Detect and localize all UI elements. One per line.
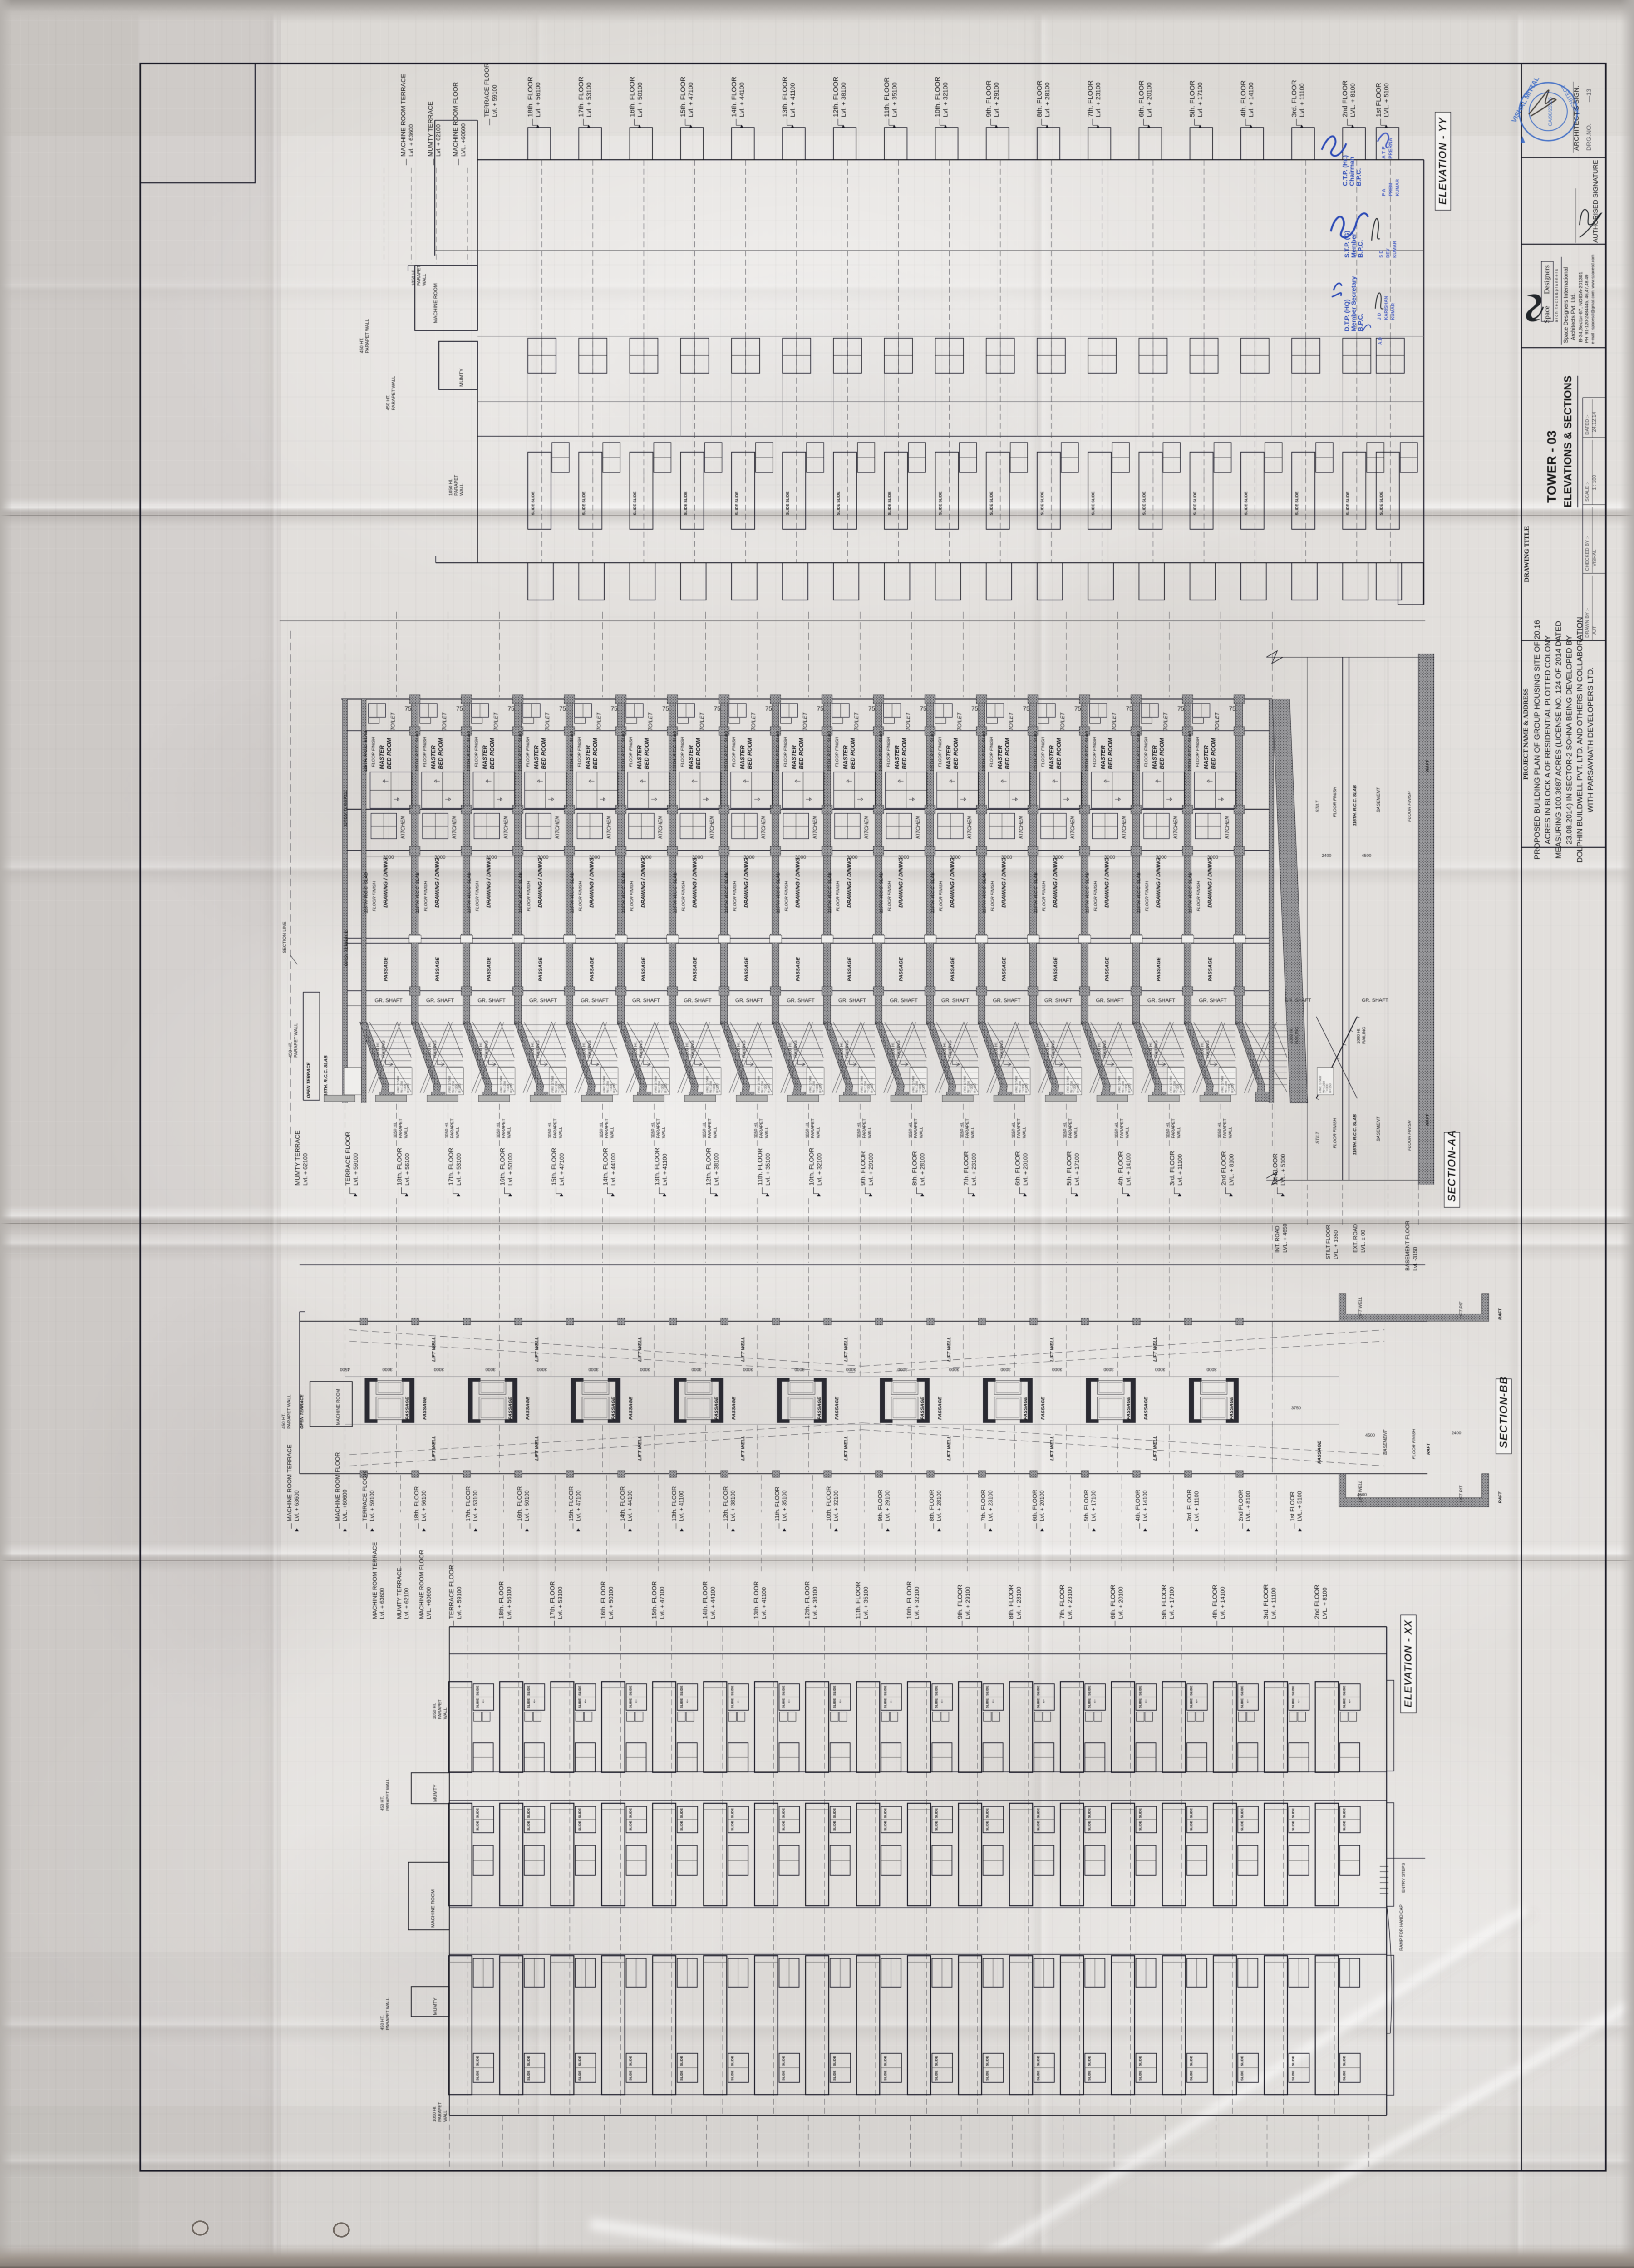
svg-text:1st FLOOR: 1st FLOOR [1289, 1491, 1296, 1521]
svg-text:6th. FLOOR: 6th. FLOOR [1031, 1490, 1038, 1521]
svg-text:Lvl. + 35100: Lvl. + 35100 [782, 1490, 788, 1521]
svg-text:LIFT WELL: LIFT WELL [843, 1436, 849, 1461]
svg-text:15th. FLOOR: 15th. FLOOR [679, 77, 687, 117]
svg-text:Lvl. + 29100: Lvl. + 29100 [885, 1490, 891, 1521]
svg-text:Lvl. + 17100: Lvl. + 17100 [1091, 1490, 1097, 1521]
svg-text:9th. FLOOR: 9th. FLOOR [877, 1490, 884, 1521]
svg-text:Lvl. -3150: Lvl. -3150 [1412, 1247, 1418, 1271]
svg-text:4500: 4500 [1365, 1433, 1375, 1438]
svg-text:3000: 3000 [433, 1367, 444, 1372]
svg-text:115TH. R.C.C. SLAB: 115TH. R.C.C. SLAB [1353, 785, 1358, 826]
svg-text:18th. FLOOR: 18th. FLOOR [527, 77, 534, 117]
svg-text:D.T.P. (HQ): D.T.P. (HQ) [1343, 299, 1350, 331]
svg-text:SLIDE SLIDE: SLIDE SLIDE [1379, 491, 1383, 515]
svg-text:S D: S D [1379, 250, 1384, 258]
svg-text:OPEN TERRACE: OPEN TERRACE [306, 1062, 311, 1098]
svg-text:12th. FLOOR: 12th. FLOOR [803, 1581, 811, 1619]
svg-text:Lvl. + 20100: Lvl. + 20100 [1117, 1587, 1124, 1619]
svg-text:24.12.14: 24.12.14 [1592, 412, 1597, 432]
svg-text:WALL: WALL [459, 483, 464, 496]
svg-text:Architects Pvt. Ltd.: Architects Pvt. Ltd. [1570, 293, 1576, 340]
svg-text:Lvl. + 44100: Lvl. + 44100 [738, 82, 745, 117]
svg-text:PASSAGE: PASSAGE [834, 1396, 840, 1420]
svg-text:MUMTY TERRACE: MUMTY TERRACE [396, 1568, 403, 1619]
svg-text:WALL: WALL [443, 2110, 448, 2122]
svg-text:1000 HI.: 1000 HI. [1289, 1028, 1294, 1044]
svg-text:4500: 4500 [1357, 1492, 1367, 1497]
svg-text:3000: 3000 [536, 1367, 547, 1372]
svg-text:DRAWN BY :-: DRAWN BY :- [1585, 608, 1590, 638]
svg-text:Lvl. + 62100: Lvl. + 62100 [302, 1153, 309, 1186]
svg-text:23.08.2014) IN SECTOR-2 SOHNA: 23.08.2014) IN SECTOR-2 SOHNA BEING DEVE… [1565, 635, 1574, 845]
svg-text:Lvl. + 50100: Lvl. + 50100 [507, 1153, 514, 1186]
svg-text:5th. FLOOR: 5th. FLOOR [1065, 1151, 1073, 1186]
svg-text:LIFT WELL: LIFT WELL [431, 1436, 437, 1461]
svg-text:3000: 3000 [1206, 1367, 1217, 1372]
svg-text:450 HT.: 450 HT. [281, 1413, 286, 1429]
svg-text:3000: 3000 [588, 1367, 599, 1372]
svg-text:Lvl. + 41100: Lvl. + 41100 [679, 1491, 685, 1521]
svg-text:RAFT: RAFT [1426, 1442, 1431, 1455]
svg-text:18th. FLOOR: 18th. FLOOR [396, 1148, 403, 1186]
svg-text:KUMAR: KUMAR [1393, 241, 1398, 258]
svg-text:3000: 3000 [1103, 1367, 1114, 1372]
svg-text:SECTION-BB: SECTION-BB [1498, 1376, 1510, 1448]
svg-text:LIFT WELL: LIFT WELL [1049, 1337, 1055, 1362]
svg-text:7th. FLOOR: 7th. FLOOR [962, 1151, 970, 1186]
svg-text:Lvl. + 56100: Lvl. + 56100 [421, 1490, 427, 1521]
svg-text:LVL. + 4650: LVL. + 4650 [1282, 1224, 1288, 1253]
svg-text:PASSAGE: PASSAGE [817, 1396, 822, 1420]
svg-text:LIFT WELL: LIFT WELL [1049, 1436, 1055, 1461]
svg-text:9th. FLOOR: 9th. FLOOR [985, 80, 993, 117]
svg-text:B-34,Sector-67, NOIDA-201301: B-34,Sector-67, NOIDA-201301 [1578, 272, 1584, 342]
svg-text:18th. FLOOR: 18th. FLOOR [413, 1486, 420, 1521]
svg-text:FIRE STAIR: FIRE STAIR [1319, 1076, 1322, 1093]
svg-text:11th. FLOOR: 11th. FLOOR [756, 1148, 763, 1186]
svg-text:RAFT: RAFT [1498, 1491, 1503, 1503]
svg-text:Space: Space [1543, 306, 1551, 323]
svg-text:3rd. FLOOR: 3rd. FLOOR [1168, 1151, 1176, 1186]
svg-text:3000: 3000 [897, 1367, 908, 1372]
svg-text:Lvl. + 38100: Lvl. + 38100 [840, 82, 847, 117]
svg-text:J D: J D [1377, 313, 1382, 320]
svg-text:RAFT: RAFT [1425, 1113, 1430, 1126]
svg-text:VISHAL: VISHAL [1592, 549, 1597, 566]
svg-text:LIFT WELL: LIFT WELL [740, 1337, 746, 1362]
svg-text:FLOOR FINISH: FLOOR FINISH [1333, 1118, 1338, 1148]
svg-text:SLIDE SLIDE: SLIDE SLIDE [1294, 491, 1299, 515]
svg-text:Lvl. + 23100: Lvl. + 23100 [1066, 1587, 1073, 1619]
svg-text:13th. FLOOR: 13th. FLOOR [753, 1581, 760, 1619]
svg-text:SLIDE SLIDE: SLIDE SLIDE [1345, 491, 1350, 515]
svg-text:LIFT WELL: LIFT WELL [637, 1436, 643, 1461]
svg-text:2400: 2400 [1452, 1431, 1461, 1436]
svg-text:Lvl. + 28100: Lvl. + 28100 [1015, 1587, 1022, 1619]
svg-text:PASSAGE: PASSAGE [731, 1396, 737, 1420]
svg-text:Lvl. + 14100: Lvl. + 14100 [1142, 1490, 1148, 1521]
svg-text:WALL: WALL [443, 1707, 448, 1719]
svg-text:8th. FLOOR: 8th. FLOOR [911, 1151, 918, 1186]
svg-text:15th. FLOOR: 15th. FLOOR [650, 1581, 658, 1619]
svg-text:8th. FLOOR: 8th. FLOOR [1036, 80, 1043, 117]
svg-text:10th. FLOOR: 10th. FLOOR [808, 1148, 815, 1186]
svg-text:PARAPET: PARAPET [417, 265, 422, 286]
svg-text:SLIDE SLIDE: SLIDE SLIDE [989, 491, 994, 515]
svg-text:B.P.C.: B.P.C. [1355, 168, 1362, 186]
svg-text:RAFT: RAFT [1425, 759, 1430, 772]
svg-text:6th. FLOOR: 6th. FLOOR [1137, 80, 1145, 117]
svg-text:PARAPET: PARAPET [438, 2102, 443, 2122]
svg-text:EXT. ROAD: EXT. ROAD [1352, 1224, 1358, 1253]
svg-text:3000: 3000 [846, 1367, 856, 1372]
svg-text:14th. FLOOR: 14th. FLOOR [619, 1486, 626, 1521]
svg-text:PASSAGE: PASSAGE [422, 1396, 428, 1420]
svg-text:Lvl. + 59100: Lvl. + 59100 [491, 85, 498, 117]
svg-text:ARCHITECT'S SIGN.: ARCHITECT'S SIGN. [1573, 85, 1580, 151]
svg-text:MUMTY: MUMTY [433, 1998, 438, 2016]
svg-text:PASSAGE: PASSAGE [1126, 1396, 1132, 1420]
svg-text:LIFT PIT: LIFT PIT [1459, 1301, 1464, 1318]
svg-text:LIFT WELL: LIFT WELL [534, 1436, 540, 1461]
svg-text:ENTRY STEPS: ENTRY STEPS [1401, 1863, 1406, 1893]
svg-text:3000: 3000 [794, 1367, 805, 1372]
svg-text:7th. FLOOR: 7th. FLOOR [1087, 80, 1094, 117]
svg-text:TOWER - 03: TOWER - 03 [1545, 430, 1559, 503]
svg-text:12th. FLOOR: 12th. FLOOR [705, 1148, 712, 1186]
svg-text:3000: 3000 [640, 1367, 650, 1372]
svg-text:Lvl. + 29100: Lvl. + 29100 [867, 1153, 874, 1186]
svg-text:SECTION-AA: SECTION-AA [1446, 1130, 1458, 1202]
svg-text:3000: 3000 [743, 1367, 753, 1372]
svg-text:Lvl. + 38100: Lvl. + 38100 [713, 1153, 720, 1186]
svg-text:STILT: STILT [1315, 800, 1320, 812]
svg-text:4th. FLOOR: 4th. FLOOR [1117, 1151, 1124, 1186]
svg-text:LVL. ± 00: LVL. ± 00 [1360, 1230, 1366, 1253]
svg-text:4th. FLOOR: 4th. FLOOR [1134, 1490, 1141, 1521]
svg-text:Lvl. + 53100: Lvl. + 53100 [455, 1153, 462, 1186]
svg-text:5th. FLOOR: 5th. FLOOR [1083, 1490, 1090, 1521]
svg-text:3750: 3750 [1291, 1406, 1301, 1411]
svg-text:DATED :-: DATED :- [1585, 414, 1590, 435]
svg-text:Lvl. + 41100: Lvl. + 41100 [789, 83, 796, 117]
svg-text:9th. FLOOR: 9th. FLOOR [956, 1585, 964, 1619]
svg-text:8th. FLOOR: 8th. FLOOR [928, 1490, 935, 1521]
svg-text:LIFT WELL: LIFT WELL [1358, 1297, 1363, 1318]
svg-text:Lvl. + 56100: Lvl. + 56100 [506, 1587, 512, 1619]
svg-text:R=150: R=150 [1329, 1083, 1332, 1093]
svg-text:1050 HI.: 1050 HI. [432, 1703, 437, 1719]
svg-text:FLOOR FINISH: FLOOR FINISH [1333, 787, 1338, 817]
svg-text:Lvl. + 11100: Lvl. + 11100 [1298, 83, 1305, 117]
svg-text:PASSAGE: PASSAGE [714, 1396, 719, 1420]
svg-text:Lvl. + 44100: Lvl. + 44100 [610, 1153, 617, 1186]
svg-text:7th. FLOOR: 7th. FLOOR [980, 1490, 987, 1521]
svg-text:Lvl. + 47100: Lvl. + 47100 [659, 1587, 665, 1619]
svg-text:3000: 3000 [1000, 1367, 1011, 1372]
svg-text:PRERNA: PRERNA [1388, 138, 1393, 159]
svg-text:11th. FLOOR: 11th. FLOOR [883, 77, 891, 117]
svg-text:3000: 3000 [1155, 1367, 1165, 1372]
svg-text:17th. FLOOR: 17th. FLOOR [548, 1581, 556, 1619]
svg-text:PASSAGE: PASSAGE [611, 1396, 616, 1420]
svg-text:Lvl. + 62100: Lvl. + 62100 [435, 124, 442, 157]
svg-text:Lvl. + 53100: Lvl. + 53100 [585, 82, 592, 117]
svg-text:ELEVATIONS & SECTIONS: ELEVATIONS & SECTIONS [1562, 375, 1574, 507]
svg-text:LIFT PIT: LIFT PIT [1459, 1485, 1464, 1502]
svg-text:PASSAGE: PASSAGE [1023, 1396, 1029, 1420]
svg-text:LIFT WELL: LIFT WELL [534, 1337, 540, 1362]
svg-text:CHECKED BY :-: CHECKED BY :- [1585, 536, 1590, 571]
svg-text:Lvl. + 63600: Lvl. + 63600 [379, 1588, 385, 1619]
svg-text:15th. FLOOR: 15th. FLOOR [550, 1148, 557, 1186]
svg-text:FLOOR FINISH: FLOOR FINISH [1407, 1120, 1412, 1151]
svg-text:BASEMENT FLOOR: BASEMENT FLOOR [1404, 1220, 1411, 1271]
svg-text:DRG.NO.: DRG.NO. [1585, 123, 1592, 151]
svg-text:SLIDE SLIDE: SLIDE SLIDE [1091, 491, 1095, 515]
svg-text:Lvl. + 29100: Lvl. + 29100 [965, 1587, 971, 1619]
svg-text:16th. FLOOR: 16th. FLOOR [600, 1581, 607, 1619]
svg-text:16th. FLOOR: 16th. FLOOR [516, 1486, 523, 1521]
svg-text:Lvl. + 50100: Lvl. + 50100 [636, 82, 643, 117]
svg-text:Lvl. + 20100: Lvl. + 20100 [1145, 82, 1152, 117]
svg-text:DRAWING TITLE: DRAWING TITLE [1523, 526, 1531, 582]
svg-text:Lvl. + 59100: Lvl. + 59100 [369, 1490, 375, 1521]
svg-text:GR. SHAFT: GR. SHAFT [1362, 998, 1388, 1003]
svg-text:BASEMENT: BASEMENT [1376, 787, 1381, 812]
svg-text:SLIDE SLIDE: SLIDE SLIDE [887, 491, 891, 515]
svg-text:450 HT.: 450 HT. [380, 1796, 385, 1811]
svg-text:LIFT WELL: LIFT WELL [637, 1337, 643, 1362]
svg-text:LVL. + 8100: LVL. + 8100 [1245, 1491, 1251, 1521]
svg-text:1st FLOOR: 1st FLOOR [1375, 83, 1383, 117]
svg-text:SLIDE SLIDE: SLIDE SLIDE [531, 491, 535, 515]
svg-text:1050 Hl.: 1050 Hl. [448, 479, 453, 496]
svg-text:Lvl. + 59100: Lvl. + 59100 [456, 1587, 463, 1619]
svg-text:4500: 4500 [1362, 853, 1371, 858]
svg-text:Lvl. + 38100: Lvl. + 38100 [730, 1490, 736, 1521]
svg-text:FLOOR FINISH: FLOOR FINISH [1407, 791, 1412, 822]
svg-text:TERRACE FLOOR: TERRACE FLOOR [344, 1132, 351, 1186]
svg-text:9th. FLOOR: 9th. FLOOR [859, 1151, 866, 1186]
svg-text:TERRACE FLOOR: TERRACE FLOOR [483, 63, 490, 117]
svg-text:LIFT WELL: LIFT WELL [946, 1337, 952, 1362]
svg-text:4th. FLOOR: 4th. FLOOR [1211, 1585, 1218, 1619]
svg-text:LVL. + 8100: LVL. + 8100 [1321, 1587, 1328, 1619]
svg-text:115TH. R.C.C. SLAB: 115TH. R.C.C. SLAB [324, 1055, 329, 1098]
svg-text:Lvl. + 44100: Lvl. + 44100 [627, 1490, 633, 1521]
svg-text:3000: 3000 [485, 1367, 496, 1372]
svg-text:RAILING: RAILING [1294, 1027, 1299, 1044]
svg-text:OPEN TERRACE: OPEN TERRACE [343, 790, 348, 826]
svg-text:Lvl. + 50100: Lvl. + 50100 [608, 1587, 615, 1619]
svg-text:B.P.C.: B.P.C. [1357, 240, 1364, 258]
svg-text:INT. ROAD: INT. ROAD [1274, 1225, 1280, 1253]
svg-text:Lvl. + 32100: Lvl. + 32100 [913, 1587, 920, 1619]
svg-text:RAFT: RAFT [1498, 1308, 1503, 1320]
svg-text:MUMTY: MUMTY [433, 1785, 438, 1802]
svg-text:Lvl. + 23100: Lvl. + 23100 [970, 1153, 977, 1186]
svg-text:Lvl. + 47100: Lvl. + 47100 [558, 1153, 565, 1186]
svg-text:Lvl. + 23100: Lvl. + 23100 [988, 1490, 994, 1521]
svg-text:LIFT WELL: LIFT WELL [1152, 1436, 1158, 1461]
svg-text:Lvl. + 20100: Lvl. + 20100 [1022, 1153, 1029, 1186]
svg-text:Lvl. + 63600: Lvl. + 63600 [408, 124, 414, 157]
svg-text:Lvl. + 32100: Lvl. + 32100 [816, 1153, 823, 1186]
svg-text:Lvl. + 50100: Lvl. + 50100 [524, 1490, 530, 1521]
svg-text:PH :91-120-2484445, 46,47,48,4: PH :91-120-2484445, 46,47,48,49 [1585, 274, 1590, 343]
svg-text:450 HT.: 450 HT. [288, 1042, 293, 1058]
svg-text:MACHINE ROOM FLOOR: MACHINE ROOM FLOOR [452, 82, 459, 157]
svg-text:Lvl. + 35100: Lvl. + 35100 [862, 1587, 869, 1619]
svg-text:Lvl. + 28100: Lvl. + 28100 [936, 1490, 942, 1521]
svg-text:a r c h i t e c t s & p l a: a r c h i t e c t s & p l a n n e r s [1554, 269, 1559, 322]
svg-text:PASSAGE: PASSAGE [1317, 1440, 1322, 1464]
svg-text:13th. FLOOR: 13th. FLOOR [671, 1486, 678, 1521]
svg-text:PASSAGE: PASSAGE [628, 1396, 634, 1420]
svg-text:3000: 3000 [691, 1367, 702, 1372]
svg-text:TERRACE FLOOR: TERRACE FLOOR [361, 1471, 368, 1521]
svg-text:4th. FLOOR: 4th. FLOOR [1240, 80, 1247, 117]
svg-text:LVL. + 5100: LVL. + 5100 [1297, 1491, 1303, 1521]
svg-text:MACHINE ROOM FLOOR: MACHINE ROOM FLOOR [334, 1452, 341, 1521]
svg-text:13th. FLOOR: 13th. FLOOR [781, 77, 789, 117]
svg-text:PASSAGE: PASSAGE [405, 1396, 410, 1420]
svg-text:7th. FLOOR: 7th. FLOOR [1058, 1585, 1065, 1619]
svg-text:PASSAGE: PASSAGE [937, 1396, 943, 1420]
svg-text:OPEN TERRACE: OPEN TERRACE [300, 1394, 305, 1429]
svg-text:Designers: Designers [1543, 265, 1551, 294]
svg-text:GR. SHAFT: GR. SHAFT [1285, 998, 1311, 1003]
svg-text:BASEMENT: BASEMENT [1383, 1429, 1388, 1455]
svg-text:PASSAGE: PASSAGE [525, 1396, 531, 1420]
svg-text:Lvl. + 23100: Lvl. + 23100 [1094, 82, 1102, 117]
svg-text:2nd FLOOR: 2nd FLOOR [1313, 1585, 1320, 1619]
svg-text:LIFT WELL: LIFT WELL [740, 1436, 746, 1461]
svg-text:SLIDE SLIDE: SLIDE SLIDE [785, 491, 790, 515]
svg-text:KUMAR: KUMAR [1395, 179, 1400, 196]
svg-text:1st FLOOR: 1st FLOOR [1271, 1153, 1279, 1186]
svg-text:KUMAR: KUMAR [1391, 303, 1396, 320]
svg-text:17th. FLOOR: 17th. FLOOR [465, 1486, 472, 1521]
svg-text:Lvl. + 11100: Lvl. + 11100 [1270, 1588, 1277, 1619]
svg-text:LIFT WELL: LIFT WELL [843, 1337, 849, 1362]
svg-text:PARAPET WALL: PARAPET WALL [294, 1023, 299, 1058]
svg-text:2nd FLOOR: 2nd FLOOR [1220, 1151, 1227, 1186]
svg-text:Lvl. + 17100: Lvl. + 17100 [1196, 82, 1204, 117]
svg-text:A T P: A T P [1381, 146, 1387, 159]
svg-text:PASSAGE: PASSAGE [1229, 1396, 1235, 1420]
svg-text:12th. FLOOR: 12th. FLOOR [832, 77, 840, 117]
svg-text:AJT: AJT [1592, 626, 1597, 635]
svg-text:SLIDE SLIDE: SLIDE SLIDE [632, 491, 637, 515]
svg-text:PREM: PREM [1388, 183, 1393, 196]
svg-text:1050 HI.: 1050 HI. [432, 2106, 437, 2122]
svg-text:OPEN TERRACE: OPEN TERRACE [344, 930, 349, 966]
svg-text:14th. FLOOR: 14th. FLOOR [602, 1148, 609, 1186]
svg-text:6th. FLOOR: 6th. FLOOR [1109, 1585, 1117, 1619]
svg-text:3000: 3000 [1052, 1367, 1062, 1372]
svg-text:11th. FLOOR: 11th. FLOOR [774, 1487, 781, 1521]
svg-text:Lvl. + 11100: Lvl. + 11100 [1176, 1154, 1183, 1186]
svg-text:T=300: T=300 [1326, 1084, 1329, 1093]
svg-text:LVL. +60600: LVL. +60600 [426, 1587, 432, 1619]
svg-text:Lvl. + 14100: Lvl. + 14100 [1219, 1587, 1226, 1619]
svg-text:10th. FLOOR: 10th. FLOOR [934, 77, 942, 117]
svg-text:Lvl. + 63600: Lvl. + 63600 [294, 1490, 300, 1521]
svg-text:Member: Member [1350, 233, 1357, 258]
svg-text:SLIDE SLIDE: SLIDE SLIDE [581, 491, 586, 515]
svg-text:STILT: STILT [1315, 1132, 1320, 1144]
svg-text:LIFT WELL: LIFT WELL [1152, 1337, 1158, 1362]
svg-text:Lvl. + 20100: Lvl. + 20100 [1039, 1490, 1045, 1521]
svg-text:PARAPET: PARAPET [438, 1699, 443, 1719]
svg-text:SLIDE SLIDE: SLIDE SLIDE [1193, 491, 1197, 515]
svg-text:PASSAGE: PASSAGE [920, 1396, 925, 1420]
svg-text:Member Secretary: Member Secretary [1350, 276, 1357, 331]
svg-text:1000 HI.: 1000 HI. [1356, 1028, 1361, 1044]
svg-text:SCALE :-: SCALE :- [1585, 482, 1590, 502]
svg-text:SLIDE SLIDE: SLIDE SLIDE [836, 491, 841, 515]
svg-text:3rd. FLOOR: 3rd. FLOOR [1262, 1584, 1270, 1619]
svg-text:RAILING: RAILING [1362, 1027, 1367, 1044]
svg-text:MACHINE ROOM: MACHINE ROOM [433, 283, 438, 323]
svg-text:Lvl. + 56100: Lvl. + 56100 [404, 1153, 411, 1186]
svg-text:450 HT.: 450 HT. [359, 338, 364, 353]
svg-text:STILT FLOOR: STILT FLOOR [1325, 1225, 1331, 1259]
svg-text:16th. FLOOR: 16th. FLOOR [628, 77, 636, 117]
svg-text:SECTION LINE: SECTION LINE [282, 921, 287, 953]
svg-text:Lvl. + 35100: Lvl. + 35100 [764, 1153, 771, 1186]
svg-text:PARAPET WALL: PARAPET WALL [391, 376, 396, 410]
svg-text:16th. FLOOR: 16th. FLOOR [499, 1148, 506, 1186]
svg-text:KARISHAN: KARISHAN [1384, 296, 1389, 320]
svg-text:Space Designers International: Space Designers International [1563, 267, 1569, 343]
svg-text:LVL. + 5100: LVL. + 5100 [1280, 1154, 1286, 1186]
svg-text:PARAPET WALL: PARAPET WALL [385, 1778, 390, 1811]
svg-text:LIFT WELL: LIFT WELL [1358, 1481, 1363, 1502]
svg-text:Lvl. + 11100: Lvl. + 11100 [1194, 1491, 1200, 1521]
svg-text:Lvl. + 17100: Lvl. + 17100 [1073, 1153, 1080, 1186]
svg-text:2400: 2400 [1322, 853, 1331, 858]
svg-text:Lvl. + 28100: Lvl. + 28100 [919, 1153, 926, 1186]
svg-text:MACHINE ROOM: MACHINE ROOM [336, 1389, 341, 1425]
svg-text:MUMTY: MUMTY [459, 368, 464, 387]
svg-text:MACHINE ROOM TERRACE: MACHINE ROOM TERRACE [371, 1542, 378, 1619]
svg-text:MACHINE ROOM TERRACE: MACHINE ROOM TERRACE [286, 1444, 293, 1521]
svg-text:S.T.P. (G): S.T.P. (G) [1343, 231, 1350, 258]
svg-text:PARAPET: PARAPET [454, 475, 459, 496]
svg-text:FLOOR FINISH: FLOOR FINISH [1412, 1429, 1417, 1459]
svg-text:WITH PARSAVNATH DEVELOPERS LTD: WITH PARSAVNATH DEVELOPERS LTD. [1586, 667, 1595, 812]
svg-text:C.T.P. (Hr.): C.T.P. (Hr.) [1341, 155, 1349, 186]
svg-text:—13: —13 [1585, 89, 1592, 102]
svg-text:MUMTY TERRACE: MUMTY TERRACE [427, 101, 434, 157]
svg-text:17th. FLOOR: 17th. FLOOR [577, 77, 585, 117]
svg-text:Lvl. + 35100: Lvl. + 35100 [891, 82, 898, 117]
svg-text:Lvl. + 47100: Lvl. + 47100 [687, 82, 694, 117]
svg-text:Lvl. + 41100: Lvl. + 41100 [661, 1154, 668, 1186]
svg-text:PARAPET WALL: PARAPET WALL [365, 319, 370, 353]
svg-text:Lvl. + 14100: Lvl. + 14100 [1247, 82, 1255, 117]
svg-text:RAMP FOR HANDICAP: RAMP FOR HANDICAP [1399, 1904, 1404, 1951]
svg-text:LIFT WELL: LIFT WELL [431, 1337, 437, 1362]
svg-text:Lvl. + 56100: Lvl. + 56100 [534, 82, 541, 117]
svg-text:PROJECT NAME & ADDRESS: PROJECT NAME & ADDRESS [1522, 688, 1530, 780]
svg-text:DEV: DEV [1386, 248, 1391, 258]
svg-text:TERRACE FLOOR: TERRACE FLOOR [448, 1565, 455, 1619]
svg-text:Lvl. + 44100: Lvl. + 44100 [709, 1587, 716, 1619]
